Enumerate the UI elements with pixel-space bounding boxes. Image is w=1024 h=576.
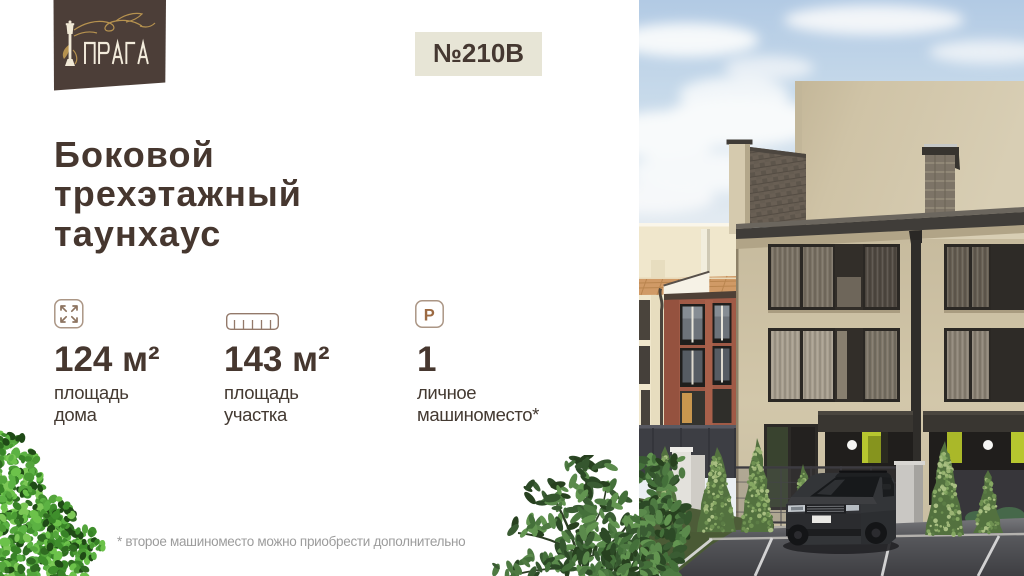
svg-text:P: P xyxy=(424,306,435,324)
